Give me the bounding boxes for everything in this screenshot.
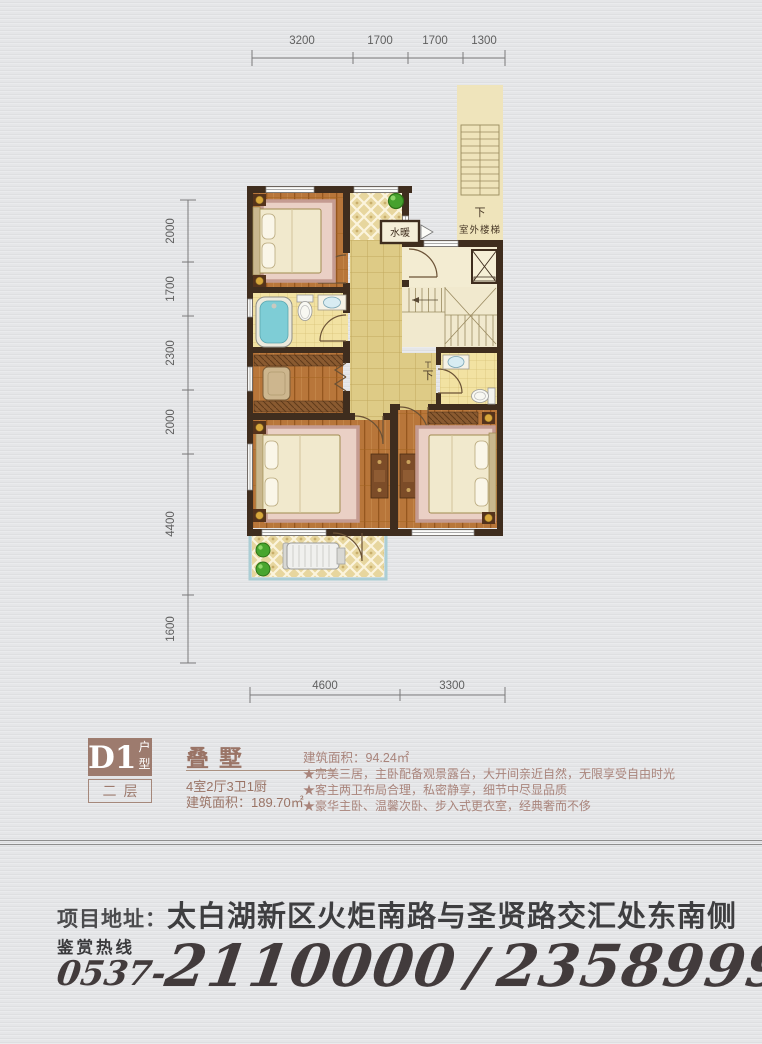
dimension-top: 3200 1700 1700 1300 <box>252 35 505 66</box>
plant-icon <box>389 194 404 209</box>
dim-bottom-2: 3300 <box>439 680 465 692</box>
dim-top-4: 1300 <box>471 35 497 47</box>
section-divider <box>0 840 762 845</box>
dimension-left: 2000 1700 2300 2000 4400 1600 <box>165 200 196 663</box>
floor-label: 二层 <box>88 779 152 803</box>
dim-top-3: 1700 <box>422 35 448 47</box>
feature-2: ★客主两卫布局合理，私密静享，细节中尽显品质 <box>303 781 567 798</box>
dim-left-1: 2000 <box>165 218 177 244</box>
dim-left-2: 1700 <box>165 276 177 302</box>
hall-closet <box>472 250 497 283</box>
phone-area-code: 0537- <box>55 958 168 990</box>
dim-top-2: 1700 <box>367 35 393 47</box>
dim-left-3: 2300 <box>165 340 177 366</box>
unit-code-badge: D1 户型 <box>88 738 152 776</box>
indoor-down-label: 下 <box>423 370 434 382</box>
bed-1 <box>253 194 334 287</box>
water-heating-label: 水暖 <box>390 226 410 239</box>
bathtub-icon <box>256 297 292 347</box>
bed-3 <box>417 412 496 524</box>
product-type: 叠墅 <box>186 739 252 773</box>
outdoor-stairs-label: 室外楼梯 <box>459 224 501 236</box>
hotline: 鉴赏热线 0537- 2110000 / 2358999 <box>57 934 762 990</box>
floor-area: 建筑面积：94.24㎡ <box>303 747 409 766</box>
unit-code: D1 <box>88 740 136 776</box>
project-address: 项目地址： 太白湖新区火炬南路与圣贤路交汇处东南侧 <box>57 893 737 935</box>
outdoor-staircase: 下 室外楼梯 <box>457 85 503 247</box>
bedroom-3-wardrobe <box>428 412 478 424</box>
feature-1: ★完美三居，主卧配备观景露台，大开间亲近自然，无限享受自由时光 <box>303 765 675 782</box>
dim-left-6: 1600 <box>165 616 177 642</box>
phone-separator: / <box>464 946 489 990</box>
hotline-left: 鉴赏热线 0537- <box>57 934 166 990</box>
corridor-floor <box>350 240 402 420</box>
stairwell-floor <box>402 287 497 347</box>
dimension-bottom: 4600 3300 <box>250 680 505 703</box>
floorplan-poster: 3200 1700 1700 1300 2000 1700 2300 2000 … <box>0 0 762 1044</box>
unit-code-suffix: 户型 <box>138 738 152 772</box>
total-area: 建筑面积：189.70㎡ <box>186 792 304 811</box>
feature-3: ★豪华主卧、温馨次卧、步入式更衣室，经典奢而不侈 <box>303 797 591 814</box>
phone-number-2: 2358999 <box>495 943 762 991</box>
dim-top-1: 3200 <box>289 35 315 47</box>
toilet-1-icon <box>297 295 313 321</box>
dim-bottom-1: 4600 <box>312 680 338 692</box>
sink-1-icon <box>318 295 346 310</box>
toilet-2-icon <box>472 388 496 404</box>
floor-plan-svg: 3200 1700 1700 1300 2000 1700 2300 2000 … <box>0 0 762 730</box>
sink-2-icon <box>443 355 469 369</box>
dim-left-5: 4400 <box>165 511 177 537</box>
address-label: 项目地址： <box>57 903 167 933</box>
bed-2 <box>253 421 358 522</box>
phone-number-1: 2110000 <box>162 943 458 991</box>
outdoor-down-label: 下 <box>475 207 486 219</box>
water-heating-closet: 水暖 <box>381 221 433 243</box>
chair-icon <box>263 367 290 400</box>
dim-left-4: 2000 <box>165 409 177 435</box>
lounge-chair-icon <box>283 543 345 569</box>
address-text: 太白湖新区火炬南路与圣贤路交汇处东南侧 <box>167 893 737 935</box>
